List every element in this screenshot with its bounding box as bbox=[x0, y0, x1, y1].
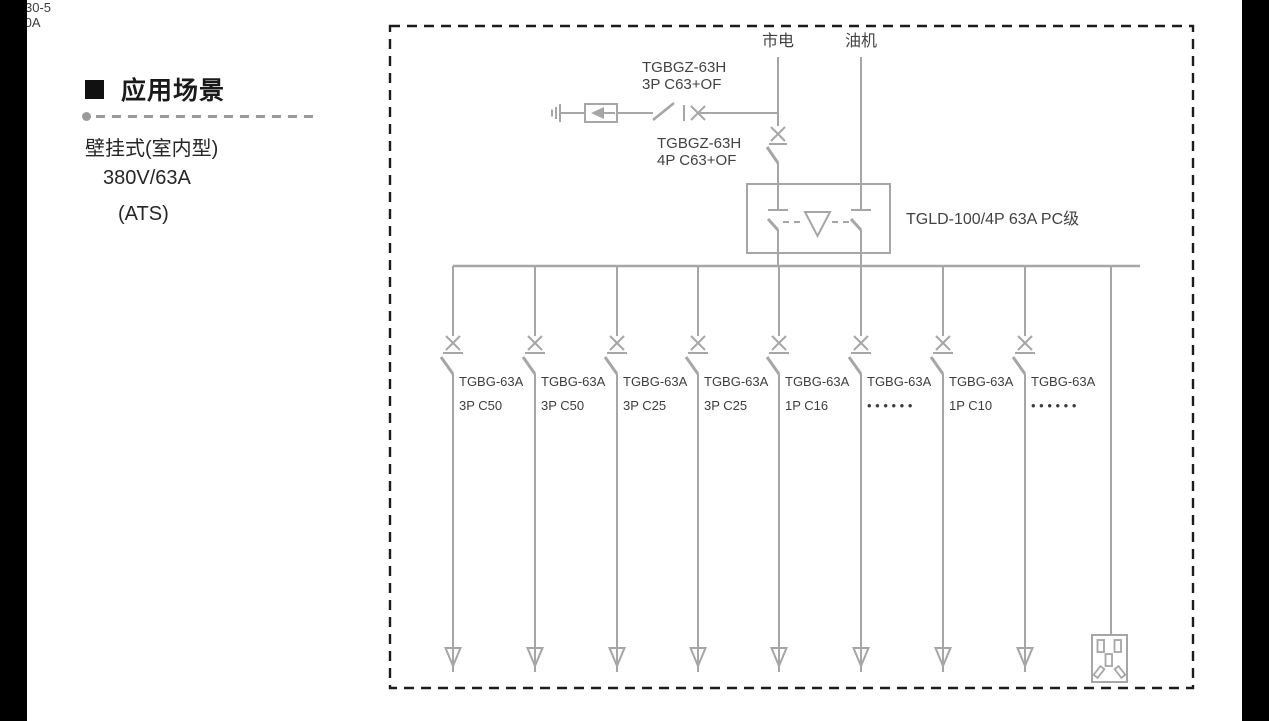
ground-icon bbox=[552, 104, 560, 122]
ats-switch-box bbox=[747, 184, 890, 266]
ats-interlock-triangle-icon bbox=[805, 212, 830, 236]
branch-label-7: TGBG-63A 1P C10 bbox=[949, 374, 1013, 413]
feeder-branch-8 bbox=[1013, 266, 1035, 672]
branch-label-2: TGBG-63A 3P C50 bbox=[541, 374, 605, 413]
spd-branch bbox=[552, 103, 778, 122]
branch-label-8: TGBG-63A • • • • • • bbox=[1031, 374, 1095, 413]
feeder-branch-5 bbox=[767, 266, 789, 672]
branch-label-4: TGBG-63A 3P C25 bbox=[704, 374, 768, 413]
main-breaker-spec: 4P C63+OF bbox=[657, 152, 741, 169]
main-breaker-label: TGBGZ-63H 4P C63+OF bbox=[657, 135, 741, 169]
ats-blade-right-icon bbox=[851, 219, 861, 230]
feeder-branch-7 bbox=[931, 266, 953, 672]
spd-icon bbox=[585, 104, 617, 122]
generator-source-label: 油机 bbox=[831, 33, 891, 50]
mains-source-label: 市电 bbox=[748, 33, 808, 50]
branch-label-1: TGBG-63A 3P C50 bbox=[459, 374, 523, 413]
branch-label-6: TGBG-63A • • • • • • bbox=[867, 374, 931, 413]
feeder-branch-4 bbox=[686, 266, 708, 672]
feeder-branch-3 bbox=[605, 266, 627, 672]
ats-label: TGLD-100/4P 63A PC级 bbox=[906, 211, 1079, 228]
spd-breaker-label: TGBGZ-63H 3P C63+OF bbox=[642, 59, 726, 93]
breaker-blade-icon bbox=[653, 103, 674, 120]
branch-label-5: TGBG-63A 1P C16 bbox=[785, 374, 849, 413]
ats-blade-left-icon bbox=[768, 219, 778, 230]
feeder-branch-1 bbox=[441, 266, 463, 672]
mains-incomer-line bbox=[767, 57, 787, 210]
main-breaker-model: TGBGZ-63H bbox=[657, 135, 741, 152]
breaker-x-icon bbox=[771, 127, 785, 141]
branch-label-3: TGBG-63A 3P C25 bbox=[623, 374, 687, 413]
diagram-dashed-border bbox=[390, 26, 1193, 688]
page: 应用场景 壁挂式(室内型) 380V/63A (ATS) bbox=[0, 0, 1269, 721]
feeder-branch-2 bbox=[523, 266, 545, 672]
socket-feeder-branch bbox=[1092, 266, 1127, 682]
spd-breaker-model: TGBGZ-63H bbox=[642, 59, 726, 76]
spd-breaker-spec: 3P C63+OF bbox=[642, 76, 726, 93]
breaker-blade-icon bbox=[767, 147, 778, 163]
feeder-branch-6 bbox=[849, 266, 871, 672]
socket-outlet-icon bbox=[1092, 635, 1127, 682]
single-line-diagram bbox=[0, 0, 1269, 721]
